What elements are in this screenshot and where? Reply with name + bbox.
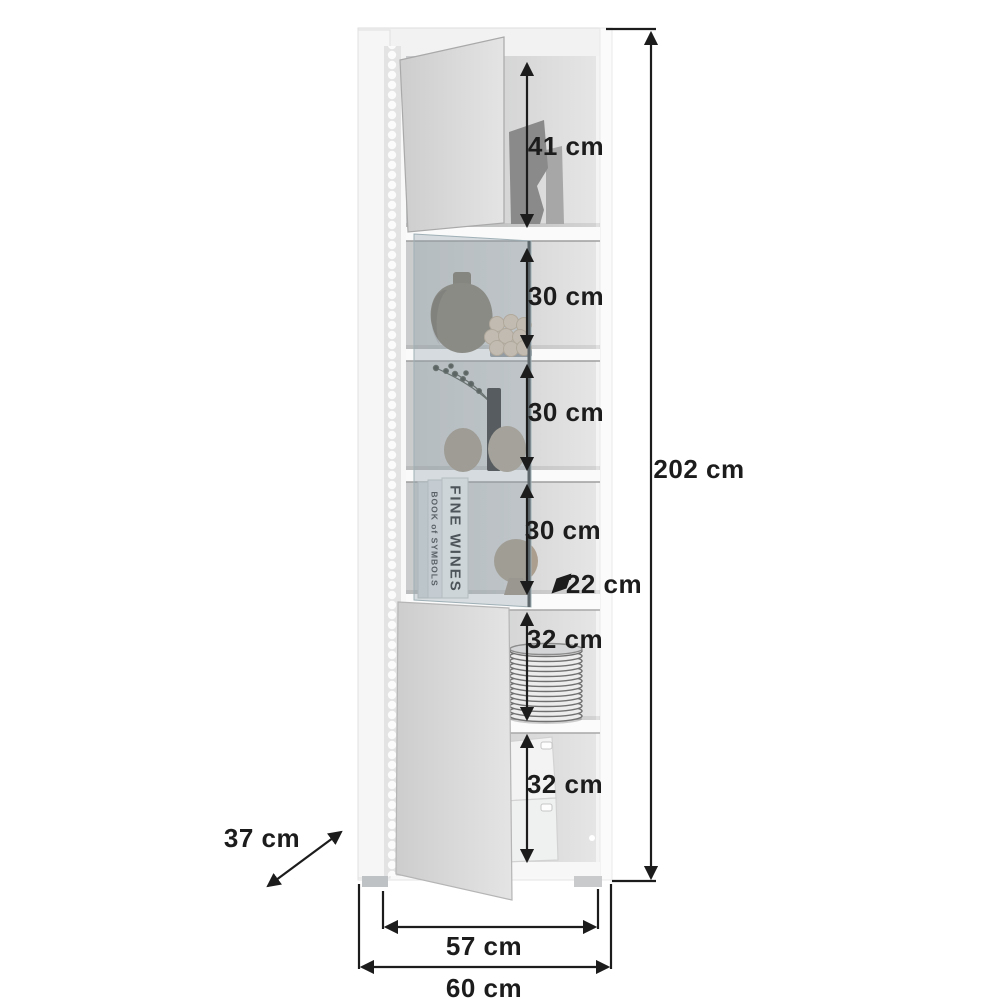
plate-stack: [510, 644, 582, 725]
cabinet-illustration: [0, 0, 1000, 1000]
left-side-panel: [358, 30, 401, 878]
dim-label-shelf-depth: 22 cm: [566, 571, 642, 597]
dim-label-lower-compartment-2: 32 cm: [527, 771, 603, 797]
dim-label-lower-compartment-1: 32 cm: [527, 626, 603, 652]
foot-right: [574, 876, 602, 887]
dim-label-total-depth: 37 cm: [224, 825, 300, 851]
open-door-bottom: [396, 602, 512, 900]
book-spine-title-secondary: BOOK of SYMBOLS: [430, 491, 439, 586]
foot-left: [362, 876, 388, 887]
product-dimension-diagram: FINE WINES BOOK of SYMBOLS 41 cm 30 cm 3…: [0, 0, 1000, 1000]
open-door-top: [400, 37, 504, 232]
dim-label-inner-width: 57 cm: [446, 933, 522, 959]
dim-label-glass-shelf-1: 30 cm: [528, 283, 604, 309]
flash-highlight: [589, 835, 595, 841]
book-spine-title: FINE WINES: [448, 485, 463, 593]
dim-label-top-compartment: 41 cm: [528, 133, 604, 159]
dim-label-total-width: 60 cm: [446, 975, 522, 1000]
dim-label-glass-shelf-3: 30 cm: [525, 517, 601, 543]
dim-label-glass-shelf-2: 30 cm: [528, 399, 604, 425]
dim-label-total-height: 202 cm: [653, 456, 744, 482]
